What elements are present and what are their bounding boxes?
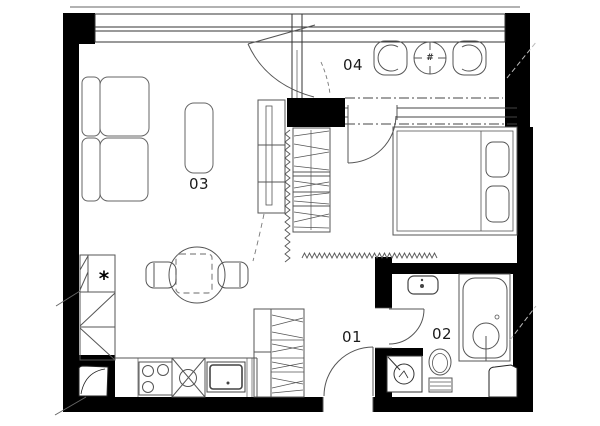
bathroom-sink: [408, 276, 438, 294]
room-label-hallway: 01: [342, 328, 362, 346]
kitchen-counter: [115, 358, 257, 397]
wall-break-marks: [55, 41, 537, 415]
under-counter-unit: [172, 358, 205, 397]
corner-closet-bottom-left: [79, 366, 108, 396]
floor-plan-drawing: [0, 0, 600, 426]
fridge: [80, 255, 115, 292]
pillow: [486, 186, 509, 222]
bedroom-door: [348, 116, 396, 163]
room-label-balcony: 04: [343, 56, 363, 74]
window-band: [70, 7, 520, 42]
tv-unit: [258, 100, 285, 213]
bed: [393, 127, 517, 235]
balcony-boundary: [345, 98, 517, 124]
freezer-star-icon: *: [99, 266, 109, 290]
balcony-chair-right: [453, 41, 486, 75]
dining-table: [169, 247, 225, 303]
washing-machine: [387, 356, 422, 392]
dining-chair-left: [146, 262, 176, 288]
bathtub: [459, 274, 510, 361]
hall-wardrobe: [254, 309, 304, 397]
table-hash-icon: #: [426, 53, 434, 63]
room-label-living-room: 03: [189, 175, 209, 193]
stove: [139, 362, 172, 395]
dining-chair-right: [218, 262, 248, 288]
coffee-table: [185, 103, 213, 173]
kitchen-sink: [207, 362, 245, 392]
pillow: [486, 142, 509, 177]
balcony-chair-left: [374, 41, 407, 75]
entrance-door: [324, 347, 373, 396]
corner-cabinet-bottom-right: [489, 365, 517, 397]
balcony-door: [248, 25, 315, 97]
toilet: [429, 349, 452, 392]
entrance-opening: [323, 395, 373, 414]
opening-break-lines: [285, 130, 437, 262]
kitchen-cabinets: [80, 292, 115, 360]
corner-sofa: [82, 77, 149, 201]
floor-plan: 01 02 03 04 * #: [0, 0, 600, 426]
bathroom-door: [375, 308, 424, 348]
wardrobe: [293, 128, 330, 232]
room-label-bathroom: 02: [432, 325, 452, 343]
